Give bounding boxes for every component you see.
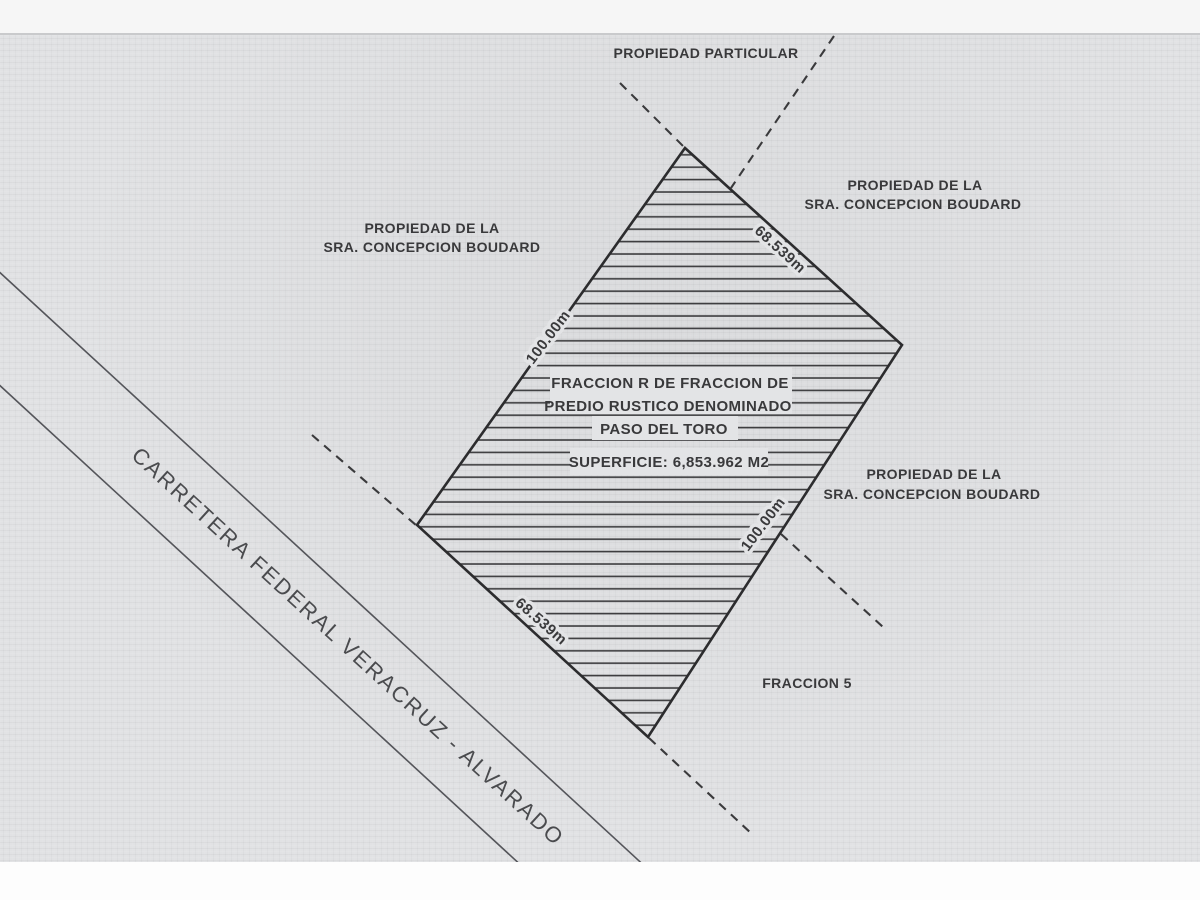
survey-plat-photo: PROPIEDAD PARTICULAR PROPIEDAD DE LA SRA… [0,0,1200,900]
label-neighbor-topright-1: PROPIEDAD DE LA [847,177,982,193]
label-neighbor-right-2: SRA. CONCEPCION BOUDARD [824,486,1041,502]
dashed-boundary-right [781,534,883,627]
parcel-title-line1: FRACCION R DE FRACCION DE [551,375,789,392]
plat-drawing: PROPIEDAD PARTICULAR PROPIEDAD DE LA SRA… [0,0,1200,900]
parcel-area-label: SUPERFICIE: 6,853.962 M2 [569,454,770,471]
label-neighbor-right-1: PROPIEDAD DE LA [866,466,1001,482]
label-neighbor-left-1: PROPIEDAD DE LA [364,220,499,236]
dashed-boundary-roadside-right [649,738,753,835]
label-neighbor-topright-2: SRA. CONCEPCION BOUDARD [805,196,1022,212]
label-fraccion-5: FRACCION 5 [762,675,852,691]
dashed-boundary-top-left [620,83,686,149]
photo-margin-top [0,0,1200,35]
dashed-boundary-roadside-left [312,435,417,526]
parcel-polygon-hatched [417,148,902,737]
label-propiedad-particular: PROPIEDAD PARTICULAR [613,45,798,61]
photo-margin-bottom [0,862,1200,900]
parcel-title-line3: PASO DEL TORO [600,421,728,438]
parcel-title-line2: PREDIO RUSTICO DENOMINADO [544,398,792,415]
label-neighbor-left-2: SRA. CONCEPCION BOUDARD [324,239,541,255]
